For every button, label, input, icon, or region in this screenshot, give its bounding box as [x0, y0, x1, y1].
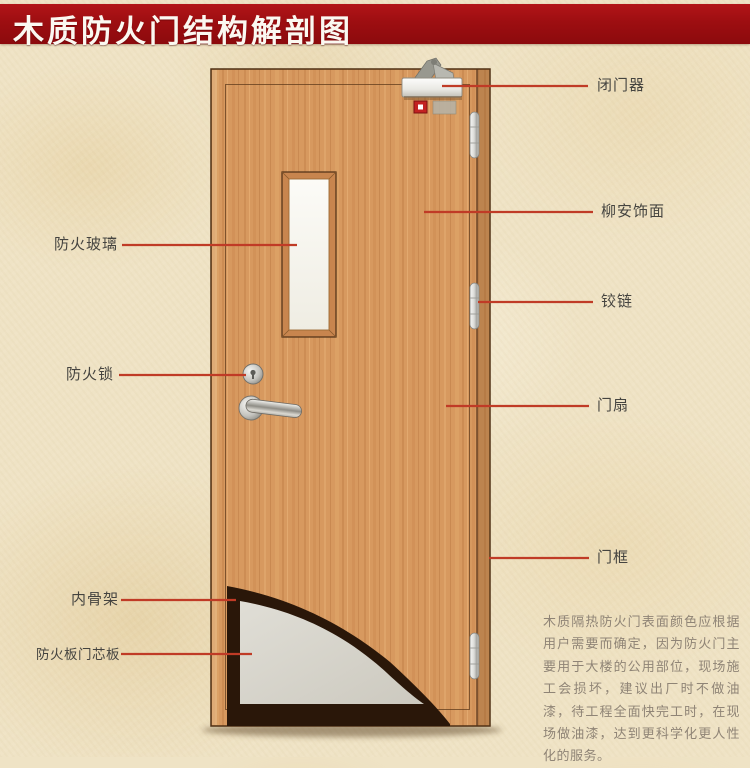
fire-glass-window — [282, 172, 336, 337]
glass-pane — [289, 179, 329, 330]
door-left-highlight — [212, 70, 217, 725]
label-lauan-veneer: 柳安饰面 — [601, 203, 665, 221]
label-inner-skeleton: 内骨架 — [71, 591, 119, 609]
label-fire-lock: 防火锁 — [66, 366, 114, 384]
door-frame-strip — [477, 69, 490, 726]
label-door-frame: 门框 — [597, 549, 629, 567]
alarm-indicator-dot — [418, 105, 423, 110]
keyhole-slot — [252, 373, 254, 379]
label-fire-glass: 防火玻璃 — [54, 236, 118, 254]
door-closer-body — [402, 78, 462, 97]
closer-shadow — [404, 96, 462, 100]
hinge-bottom-icon — [470, 633, 479, 679]
label-core-board: 防火板门芯板 — [36, 646, 120, 664]
hinge-top-icon — [470, 112, 479, 158]
label-door-leaf: 门扇 — [597, 397, 629, 415]
closer-arm-pivot — [431, 59, 437, 65]
label-door-closer: 闭门器 — [597, 77, 645, 95]
label-hinge: 铰链 — [601, 293, 633, 311]
hinge-middle-icon — [470, 283, 479, 329]
product-description: 木质隔热防火门表面颜色应根据用户需要而确定，因为防火门主要用于大楼的公用部位，现… — [543, 611, 740, 768]
closer-mount-plate — [433, 101, 456, 114]
